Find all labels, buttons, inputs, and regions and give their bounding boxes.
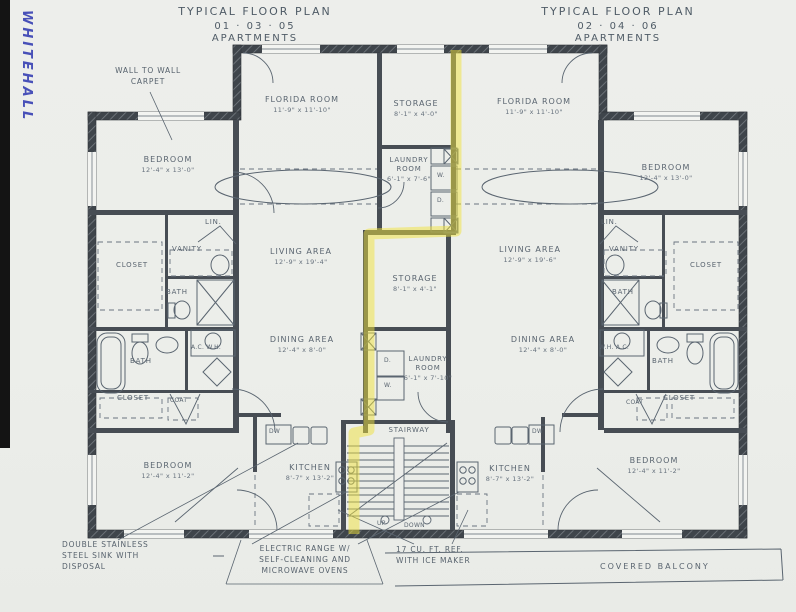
room-name: BEDROOM [122,461,214,471]
annotation-line: SELF-CLEANING AND [238,555,372,566]
label-kitchen-right: KITCHEN 8'-7" x 13'-2" [480,464,540,484]
room-name: KITCHEN [480,464,540,474]
annotation-line: CARPET [100,77,196,88]
room-dims: 12'-4" x 13'-0" [124,166,212,174]
bath-sink-right [657,337,679,353]
room-name: STORAGE [385,99,447,109]
room-name: ROOM [402,364,454,373]
room-dims: 6'-1" x 7'-10" [402,374,454,382]
annotation-line: DOUBLE STAINLESS [62,540,149,551]
annotation-carpet: WALL TO WALL CARPET [100,66,196,88]
room-dims: 12'-9" x 19'-6" [485,256,575,264]
toilet-right [687,334,703,364]
annotation-line: DISPOSAL [62,562,149,573]
room-dims: 11'-9" x 11'-10" [484,108,584,116]
room-name: STORAGE [388,274,442,284]
label-bath-upper-right: BATH [612,288,634,297]
water-heater-left [191,330,235,386]
label-bedroom-bottom-left: BEDROOM 12'-4" x 11'-2" [122,461,214,481]
label-bedroom-bottom-right: BEDROOM 12'-4" x 11'-2" [608,456,700,476]
label-lin-left: LIN. [205,218,222,227]
label-vanity-right: VANITY [609,245,639,254]
label-lin-right: LIN. [601,218,618,227]
label-bedroom-top-right: BEDROOM 12'-4" x 13'-0" [622,163,710,183]
room-dims: 8'-1" x 4'-1" [388,285,442,293]
label-dishwasher-left: DW [269,428,280,436]
vanity-sink-left [211,255,229,275]
label-ac-wh-left: A.C. W.H. [191,344,221,352]
label-coat-right: COAT [626,399,643,407]
shower-right [602,280,639,325]
room-dims: 6'-1" x 7'-6" [380,175,438,183]
room-name: BEDROOM [124,155,212,165]
annotation-refrigerator: 17 CU. FT. REF. WITH ICE MAKER [396,545,470,567]
stairway-drawing [347,438,449,524]
label-closet-lower-left: CLOSET [104,394,162,403]
label-storage-lower: STORAGE 8'-1" x 4'-1" [388,274,442,294]
annotation-line: 17 CU. FT. REF. [396,545,470,556]
label-washer-upper: W. [437,172,445,180]
range-right [457,462,478,492]
water-heater-right [600,330,644,386]
annotation-line: WITH ICE MAKER [396,556,470,567]
label-florida-room-right: FLORIDA ROOM 11'-9" x 11'-10" [484,97,584,117]
room-name: BEDROOM [622,163,710,173]
label-living-area-left: LIVING AREA 12'-9" x 19'-4" [256,247,346,267]
label-washer-lower: W. [384,382,392,390]
floorplan-linework [0,0,796,612]
room-name: LIVING AREA [256,247,346,257]
label-closet-lower-right: CLOSET [650,394,708,403]
label-dining-area-left: DINING AREA 12'-4" x 8'-0" [256,335,348,355]
shower-left [197,280,234,325]
room-dims: 11'-9" x 11'-10" [252,106,352,114]
room-dims: 12'-4" x 11'-2" [608,467,700,475]
bathtub-right [710,333,738,393]
annotation-line: STEEL SINK WITH [62,551,149,562]
label-stairway: STAIRWAY [370,426,448,435]
label-florida-room-left: FLORIDA ROOM 11'-9" x 11'-10" [252,95,352,115]
label-closet-upper-left: CLOSET [100,261,164,270]
label-dishwasher-right: DW [532,428,543,436]
bathtub-left [97,333,125,393]
room-dims: 12'-9" x 19'-4" [256,258,346,266]
label-storage-upper: STORAGE 8'-1" x 4'-0" [385,99,447,119]
room-dims: 12'-4" x 8'-0" [256,346,348,354]
label-coat-left: COAT [170,397,187,405]
annotation-balcony: COVERED BALCONY [600,562,710,572]
bath-sink-left [156,337,178,353]
room-name: BEDROOM [608,456,700,466]
label-vanity-left: VANITY [172,245,202,254]
label-bedroom-top-left: BEDROOM 12'-4" x 13'-0" [124,155,212,175]
label-kitchen-left: KITCHEN 8'-7" x 13'-2" [280,463,340,483]
annotation-line: WALL TO WALL [100,66,196,77]
room-name: FLORIDA ROOM [484,97,584,107]
room-name: ROOM [380,165,438,174]
scanned-floor-plan: WHITEHALL TYPICAL FLOOR PLAN 01 · 03 · 0… [0,0,796,612]
room-dims: 12'-4" x 8'-0" [497,346,589,354]
room-name: LIVING AREA [485,245,575,255]
label-laundry-upper: LAUNDRY ROOM 6'-1" x 7'-6" [380,156,438,184]
room-dims: 12'-4" x 11'-2" [122,472,214,480]
room-name: LAUNDRY [380,156,438,165]
room-dims: 8'-7" x 13'-2" [480,475,540,483]
label-wh-ac-right: W.H. A.C. [599,344,629,352]
fixtures [97,148,738,492]
room-name: DINING AREA [256,335,348,345]
room-name: KITCHEN [280,463,340,473]
label-dining-area-right: DINING AREA 12'-4" x 8'-0" [497,335,589,355]
room-dims: 12'-4" x 13'-0" [622,174,710,182]
annotation-range: ELECTRIC RANGE W/ SELF-CLEANING AND MICR… [238,544,372,577]
label-closet-upper-right: CLOSET [674,261,738,270]
label-bath-lower-right: BATH [652,357,674,366]
annotation-sink: DOUBLE STAINLESS STEEL SINK WITH DISPOSA… [62,540,149,573]
label-dryer-upper: D. [437,197,444,205]
room-dims: 8'-1" x 4'-0" [385,110,447,118]
vanity-sink-right [606,255,624,275]
label-up: UP [377,520,386,528]
label-living-area-right: LIVING AREA 12'-9" x 19'-6" [485,245,575,265]
room-name: FLORIDA ROOM [252,95,352,105]
room-dims: 8'-7" x 13'-2" [280,474,340,482]
label-down: DOWN [404,522,425,530]
label-bath-upper-left: BATH [166,288,188,297]
label-bath-lower-left: BATH [130,357,152,366]
room-name: DINING AREA [497,335,589,345]
label-dryer-lower: D. [384,357,391,365]
toilet-upper-left [168,301,190,319]
annotation-line: ELECTRIC RANGE W/ [238,544,372,555]
room-name: LAUNDRY [402,355,454,364]
annotation-line: MICROWAVE OVENS [238,566,372,577]
label-laundry-lower: LAUNDRY ROOM 6'-1" x 7'-10" [402,355,454,383]
